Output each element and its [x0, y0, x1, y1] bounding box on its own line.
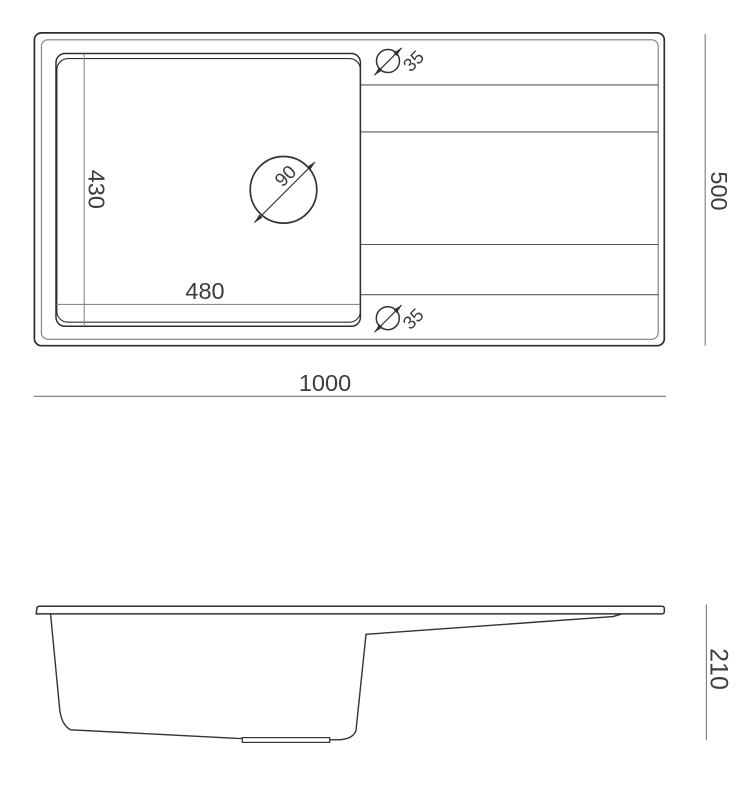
svg-text:480: 480: [185, 278, 224, 304]
svg-text:430: 430: [83, 170, 109, 209]
svg-text:500: 500: [706, 171, 732, 210]
svg-text:210: 210: [705, 648, 733, 690]
svg-text:1000: 1000: [299, 370, 351, 396]
